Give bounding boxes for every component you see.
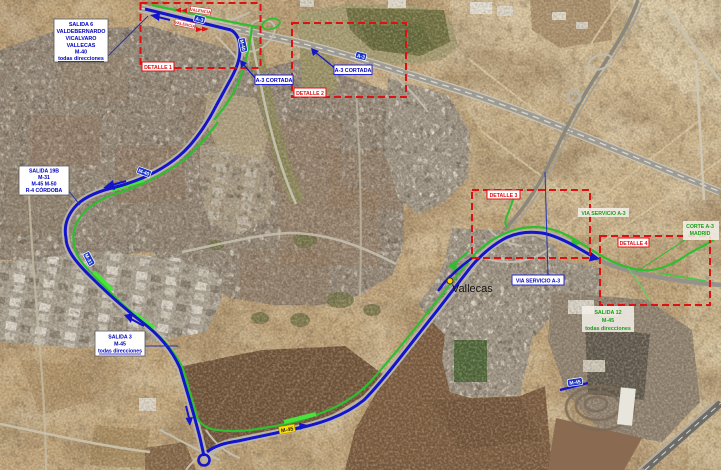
- svg-text:SALIDA 3: SALIDA 3: [108, 335, 132, 341]
- svg-text:DETALLE 3: DETALLE 3: [490, 193, 518, 199]
- svg-text:VIA SERVICIO A-3: VIA SERVICIO A-3: [581, 211, 625, 217]
- svg-text:DETALLE 2: DETALLE 2: [296, 91, 324, 97]
- svg-text:MADRID: MADRID: [690, 231, 711, 237]
- svg-text:VIA SERVICIO A-3: VIA SERVICIO A-3: [516, 278, 560, 284]
- svg-text:M-40: M-40: [75, 50, 87, 56]
- svg-text:A-3 CORTADA: A-3 CORTADA: [256, 78, 293, 84]
- svg-text:A-3 CORTADA: A-3 CORTADA: [335, 68, 372, 74]
- svg-text:M-45: M-45: [602, 318, 614, 324]
- svg-text:R-4 CÓRDOBA: R-4 CÓRDOBA: [26, 186, 63, 194]
- svg-text:M-45: M-45: [114, 342, 126, 348]
- svg-text:SALIDA 19B: SALIDA 19B: [29, 169, 59, 175]
- svg-text:M-31: M-31: [38, 175, 50, 181]
- svg-text:SALIDA 12: SALIDA 12: [594, 310, 621, 316]
- svg-text:VALLECAS: VALLECAS: [67, 43, 96, 49]
- svg-text:DETALLE 4: DETALLE 4: [620, 241, 648, 247]
- svg-text:todas direcciones: todas direcciones: [585, 326, 631, 332]
- svg-text:SALIDA 6: SALIDA 6: [69, 22, 93, 28]
- svg-text:DETALLE 1: DETALLE 1: [144, 65, 172, 71]
- svg-text:VALDEBERNARDO: VALDEBERNARDO: [56, 29, 105, 35]
- svg-text:VICALVARO: VICALVARO: [66, 36, 97, 42]
- svg-text:M-45 M-50: M-45 M-50: [31, 182, 56, 188]
- svg-text:Vallecas: Vallecas: [452, 283, 493, 295]
- svg-text:CORTE A-3: CORTE A-3: [686, 224, 714, 230]
